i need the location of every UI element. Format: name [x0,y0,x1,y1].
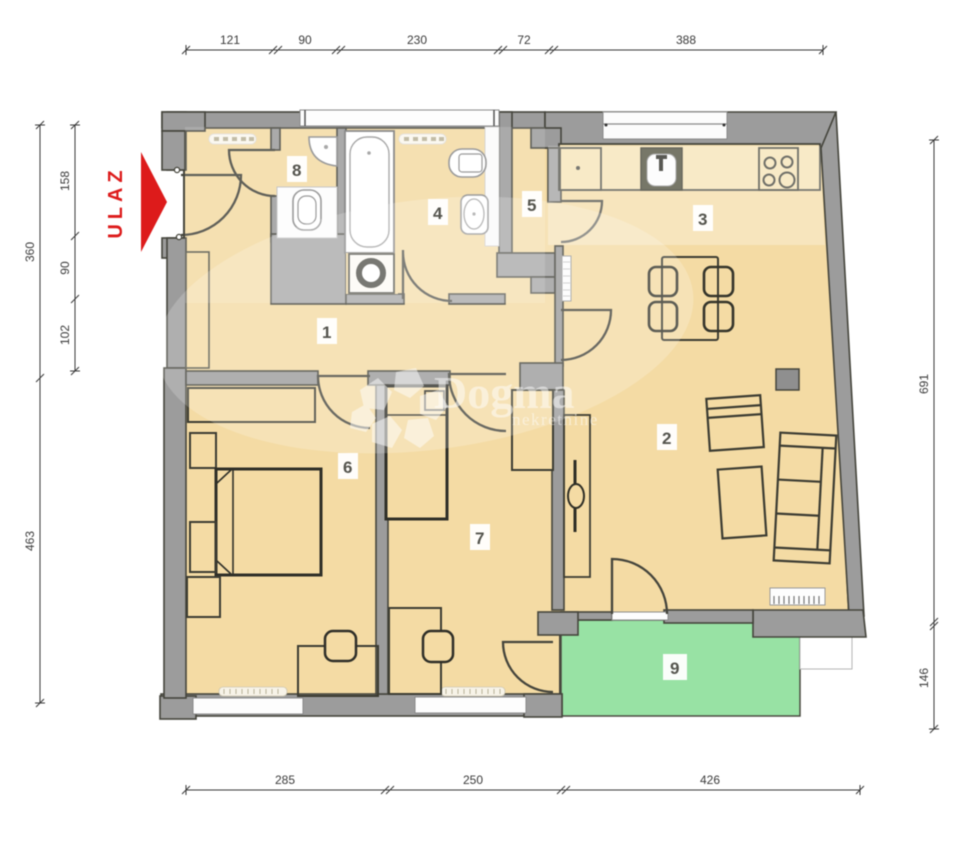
svg-text:463: 463 [23,531,37,551]
svg-text:9: 9 [670,659,679,678]
svg-text:426: 426 [700,773,720,787]
svg-text:90: 90 [298,33,312,47]
svg-text:285: 285 [275,773,295,787]
svg-text:72: 72 [517,33,531,47]
svg-text:1: 1 [322,323,331,342]
svg-text:102: 102 [58,325,72,345]
svg-text:90: 90 [58,261,72,275]
svg-text:230: 230 [407,33,427,47]
svg-text:691: 691 [917,374,931,394]
svg-text:388: 388 [676,33,696,47]
svg-text:121: 121 [220,33,240,47]
svg-text:4: 4 [433,204,443,223]
svg-text:5: 5 [527,196,536,215]
svg-text:360: 360 [23,242,37,262]
svg-text:6: 6 [343,458,352,477]
svg-text:250: 250 [463,773,483,787]
svg-text:3: 3 [698,210,707,229]
svg-text:2: 2 [662,429,671,448]
svg-text:146: 146 [917,668,931,688]
svg-text:8: 8 [292,161,301,180]
svg-text:ULAZ: ULAZ [105,165,127,238]
svg-text:7: 7 [475,529,484,548]
svg-text:nekretnine: nekretnine [512,410,599,429]
svg-text:158: 158 [58,171,72,191]
